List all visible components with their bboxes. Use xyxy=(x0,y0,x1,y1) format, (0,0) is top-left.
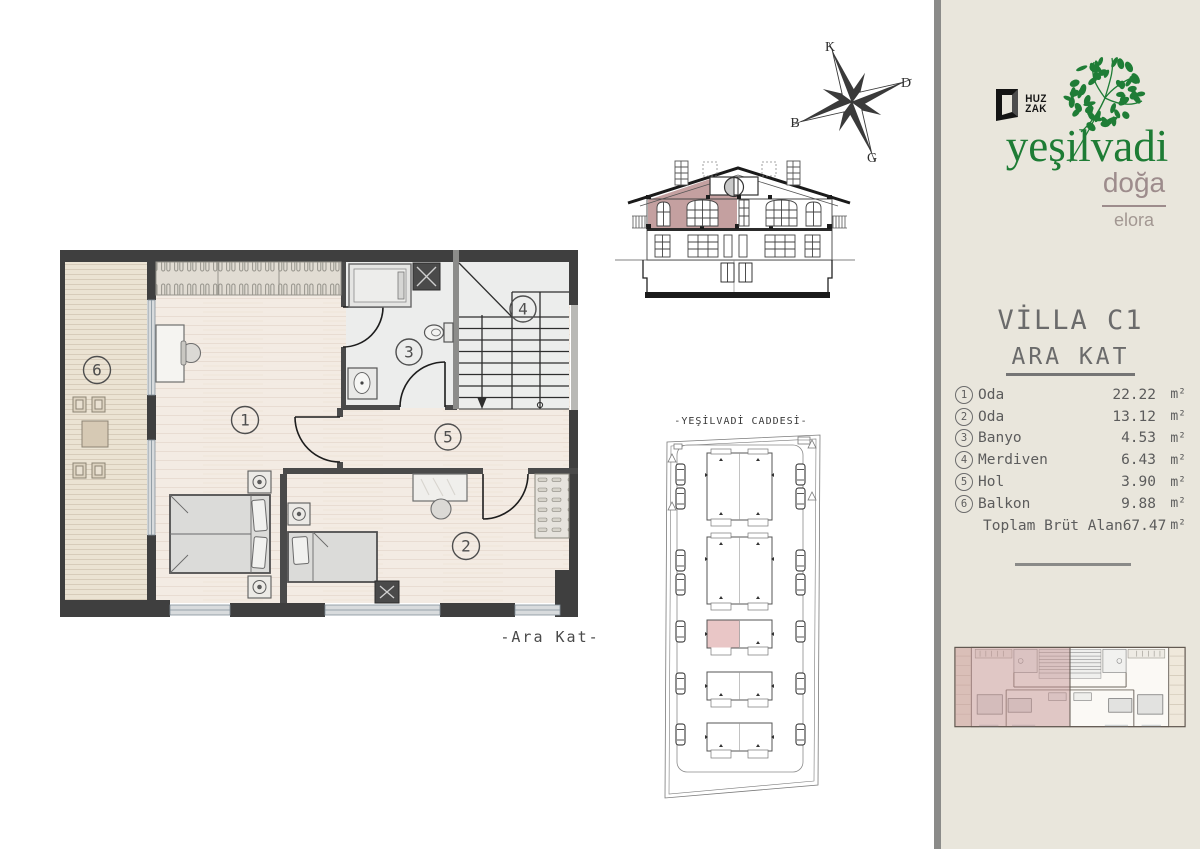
row-label: Oda xyxy=(978,409,1004,425)
svg-text:6: 6 xyxy=(92,361,102,380)
brand-tagline: doğa xyxy=(1101,167,1167,199)
row-unit: m² xyxy=(1156,475,1186,490)
table-row: 5 Hol 3.90 m² xyxy=(955,471,1186,493)
street-label: -YEŞİLVADİ CADDESİ- xyxy=(674,414,807,427)
row-label: Oda xyxy=(978,387,1004,403)
plan-caption: -Ara Kat- xyxy=(470,628,630,646)
row-number-badge: 2 xyxy=(955,408,973,426)
compass-east-label: D xyxy=(901,76,911,91)
row-label: Merdiven xyxy=(978,452,1048,468)
total-area: 67.47 xyxy=(1123,518,1167,534)
row-number-badge: 6 xyxy=(955,495,973,513)
table-row: 1 Oda 22.22 m² xyxy=(955,384,1186,406)
svg-text:4: 4 xyxy=(518,300,528,319)
row-unit: m² xyxy=(1156,387,1186,402)
table-row: 6 Balkon 9.88 m² xyxy=(955,493,1186,515)
row-area: 13.12 xyxy=(1104,409,1156,425)
row-area: 4.53 xyxy=(1104,430,1156,446)
table-row: 3 Banyo 4.53 m² xyxy=(955,428,1186,450)
compass-south-label: G xyxy=(867,151,877,166)
site-block-1 xyxy=(705,449,774,526)
svg-text:1: 1 xyxy=(240,411,250,430)
svg-text:3: 3 xyxy=(404,343,414,362)
brand-edition: elora xyxy=(1101,210,1167,231)
row-number-badge: 1 xyxy=(955,386,973,404)
row-label: Hol xyxy=(978,474,1004,490)
huzzak-logo-text: HUZ ZAK xyxy=(1025,94,1047,114)
row-label: Banyo xyxy=(978,430,1022,446)
table-total-row: Toplam Brüt Alan 67.47 m² xyxy=(955,515,1186,537)
row-number-badge: 5 xyxy=(955,473,973,491)
row-number-badge: 4 xyxy=(955,451,973,469)
brochure-page: 1 2 3 4 5 6 -Ara Kat- xyxy=(0,0,1200,849)
site-block-2 xyxy=(705,533,774,610)
svg-text:5: 5 xyxy=(443,428,453,447)
site-unit-highlight xyxy=(708,621,740,648)
huzzak-logo: HUZ ZAK xyxy=(993,86,1048,122)
brand-divider xyxy=(1102,205,1166,207)
site-plan: -YEŞİLVADİ CADDESİ- xyxy=(648,400,883,812)
row-area: 6.43 xyxy=(1104,452,1156,468)
floor-title: ARA KAT xyxy=(1006,344,1136,376)
row-unit: m² xyxy=(1156,496,1186,511)
row-area: 22.22 xyxy=(1104,387,1156,403)
total-label: Toplam Brüt Alan xyxy=(983,518,1123,534)
row-unit: m² xyxy=(1156,431,1186,446)
compass-west-label: B xyxy=(790,116,799,131)
villa-title: VİLLA C1 xyxy=(941,305,1200,336)
key-plan-thumbnail xyxy=(952,643,1188,733)
floor-plan-drawing: 1 2 3 4 5 6 xyxy=(55,245,585,640)
row-area: 9.88 xyxy=(1104,496,1156,512)
row-number-badge: 3 xyxy=(955,429,973,447)
key-plan-highlight xyxy=(955,647,1070,726)
basement xyxy=(643,260,832,298)
site-block-3 xyxy=(705,620,774,655)
svg-text:2: 2 xyxy=(461,537,471,556)
floor-title-wrap: ARA KAT xyxy=(941,344,1200,376)
row-area: 3.90 xyxy=(1104,474,1156,490)
table-row: 2 Oda 13.12 m² xyxy=(955,406,1186,428)
huzzak-logo-icon xyxy=(993,86,1021,122)
table-row: 4 Merdiven 6.43 m² xyxy=(955,449,1186,471)
sidebar-divider xyxy=(1015,563,1131,566)
brand-name: yeşilvadi xyxy=(975,124,1199,169)
total-unit: m² xyxy=(1166,518,1186,533)
info-sidebar: HUZ ZAK yeşilvadi doğa elora VİLLA C1 AR… xyxy=(934,0,1200,849)
row-unit: m² xyxy=(1156,453,1186,468)
row-unit: m² xyxy=(1156,409,1186,424)
row-label: Balkon xyxy=(978,496,1030,512)
site-block-4 xyxy=(705,672,774,707)
site-block-5 xyxy=(705,723,774,758)
building-elevation xyxy=(610,150,860,315)
compass-north-label: K xyxy=(825,40,835,55)
room-area-table: 1 Oda 22.22 m² 2 Oda 13.12 m² 3 Banyo 4.… xyxy=(955,384,1186,537)
